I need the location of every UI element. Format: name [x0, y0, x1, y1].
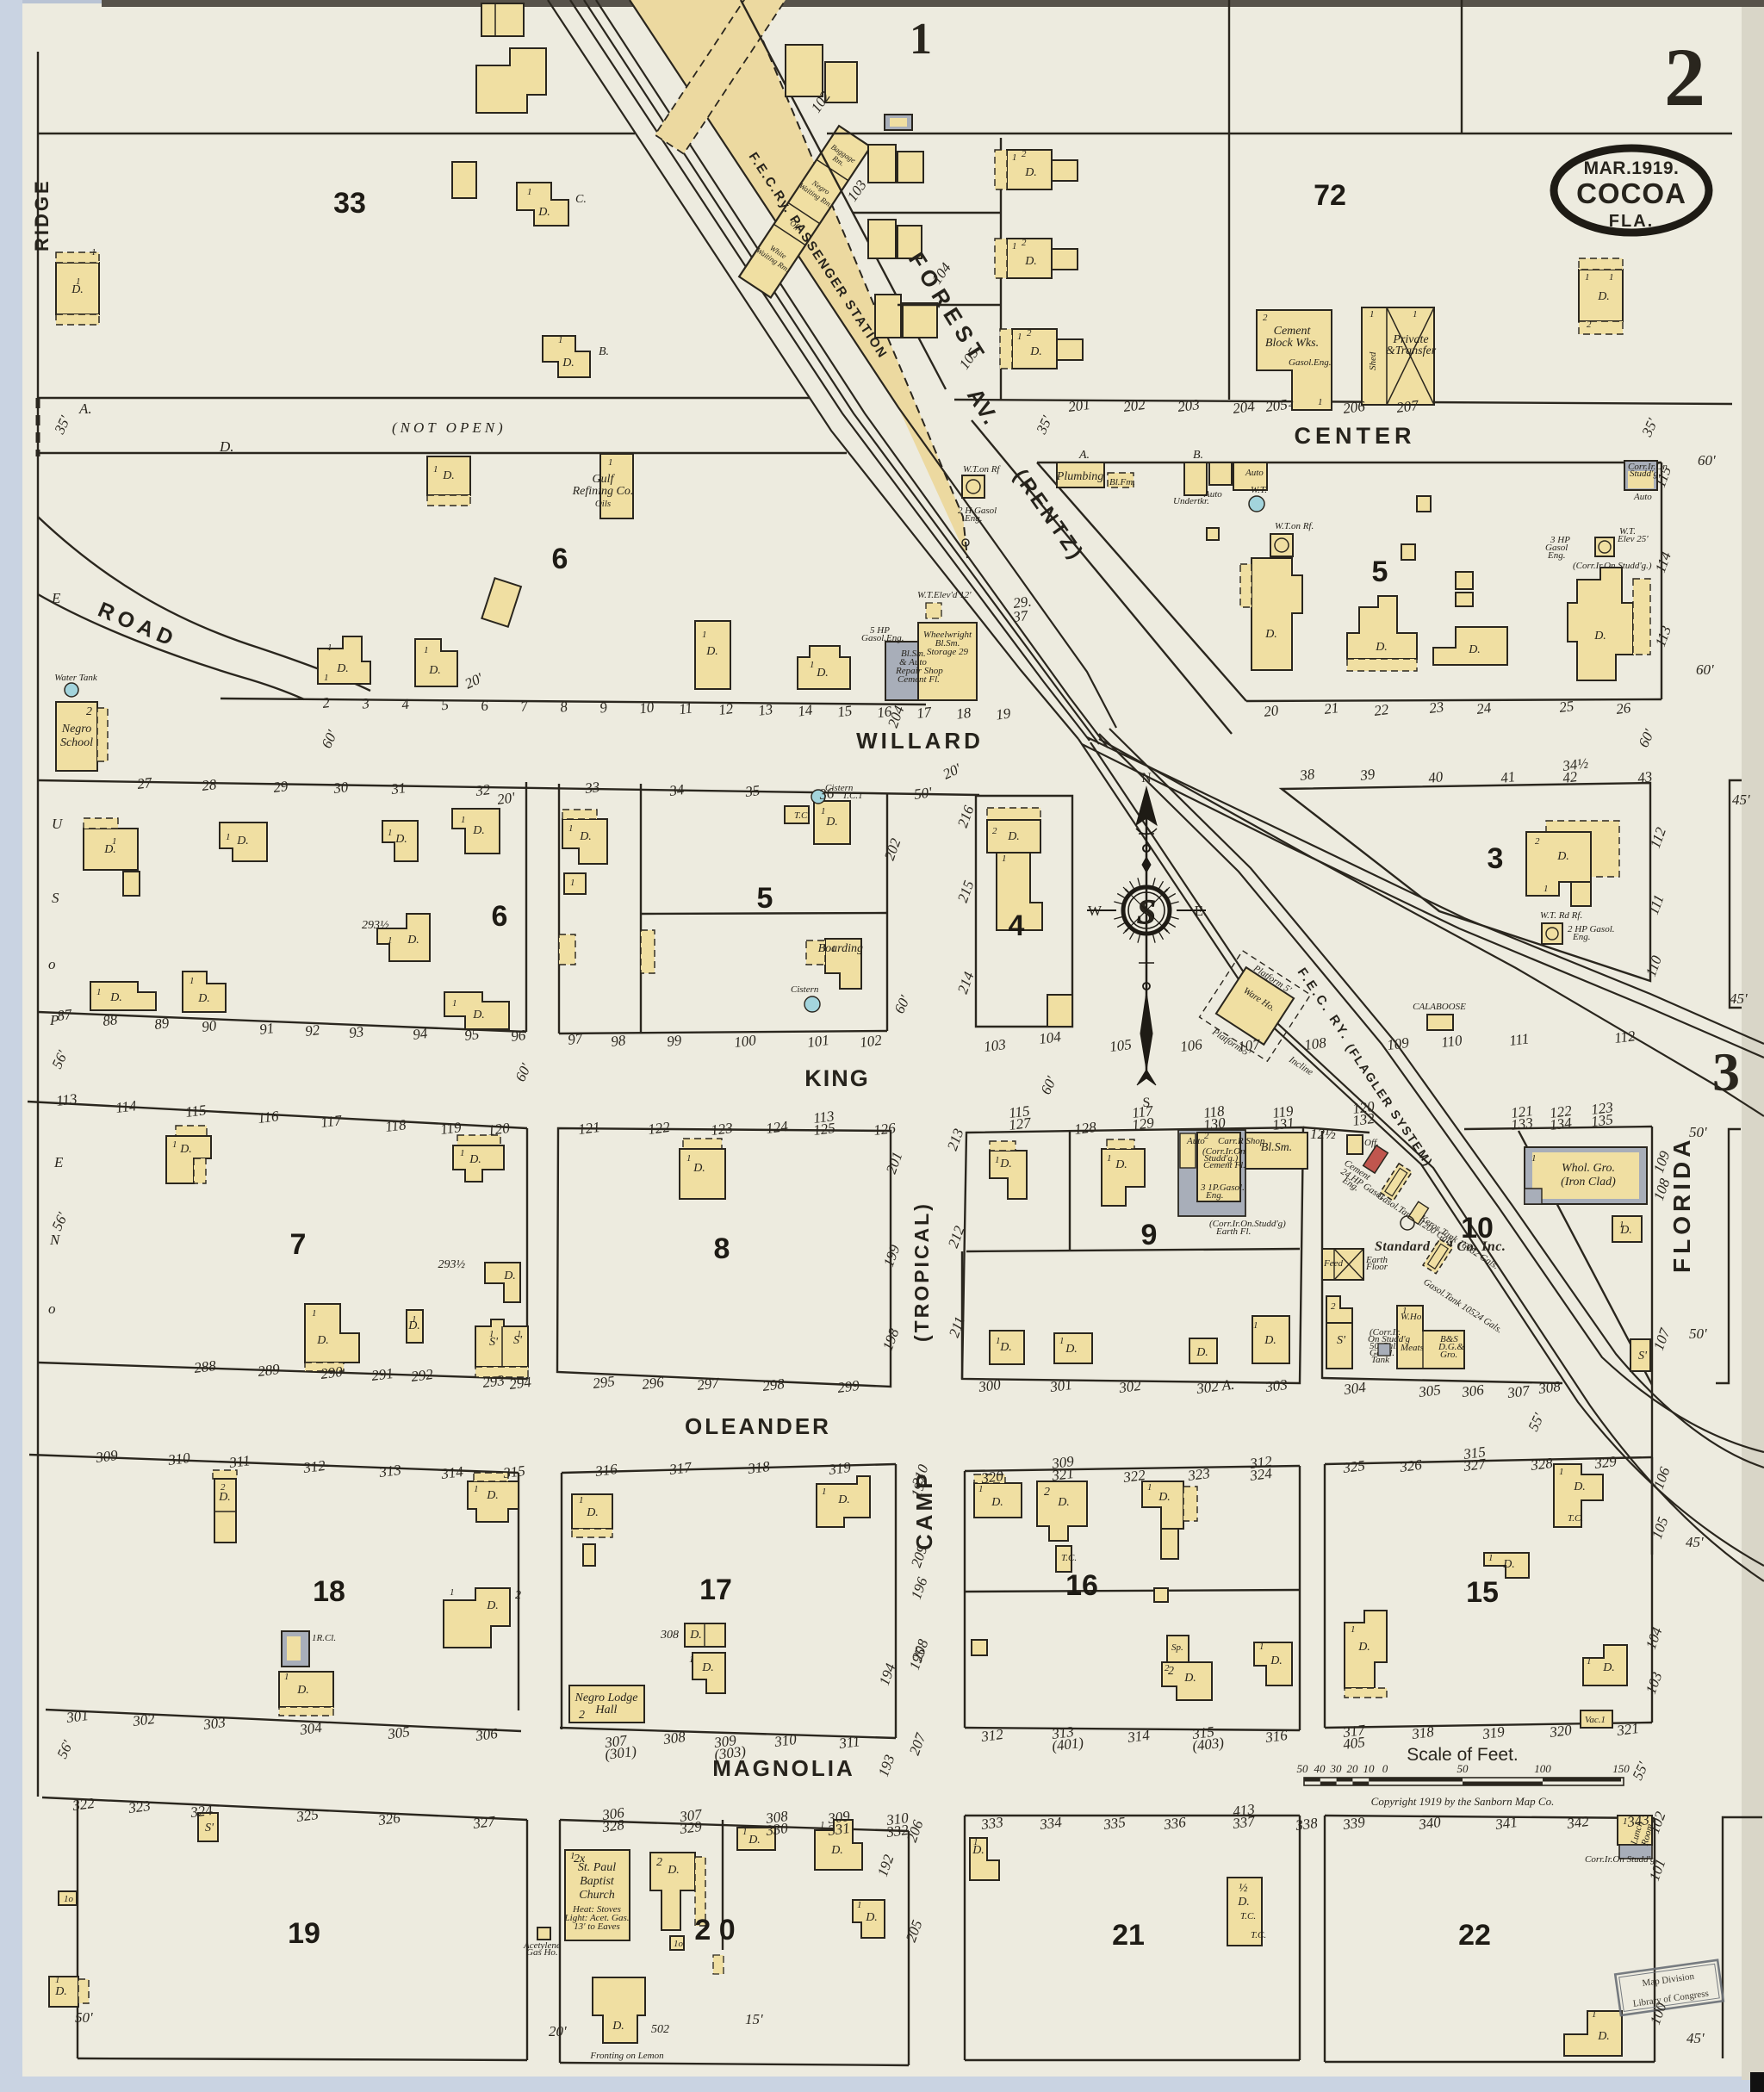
svg-text:304: 304 [1342, 1379, 1367, 1398]
svg-text:297: 297 [696, 1375, 721, 1394]
svg-text:295: 295 [592, 1373, 616, 1392]
svg-text:o: o [48, 956, 56, 972]
svg-text:119: 119 [439, 1119, 463, 1138]
svg-text:1: 1 [1559, 1467, 1564, 1477]
svg-text:50': 50' [1689, 1124, 1707, 1140]
svg-text:1: 1 [1017, 332, 1022, 342]
svg-text:2: 2 [1289, 399, 1294, 409]
svg-text:336: 336 [1162, 1814, 1187, 1833]
svg-text:2: 2 [1331, 1301, 1336, 1312]
svg-text:303: 303 [202, 1714, 227, 1733]
svg-text:1: 1 [1012, 152, 1017, 163]
svg-text:1: 1 [822, 1487, 827, 1497]
svg-text:6: 6 [552, 543, 568, 575]
svg-text:99: 99 [666, 1032, 683, 1050]
svg-text:135: 135 [1590, 1111, 1614, 1130]
svg-text:2: 2 [515, 1589, 521, 1602]
svg-text:D.: D. [469, 1153, 481, 1166]
svg-text:33: 33 [333, 187, 366, 220]
svg-text:1: 1 [388, 935, 393, 946]
svg-text:D.: D. [705, 645, 718, 658]
svg-text:1: 1 [312, 1308, 317, 1319]
svg-text:Sp.: Sp. [1171, 1642, 1183, 1653]
svg-text:298: 298 [761, 1375, 786, 1394]
svg-text:D.: D. [701, 1661, 714, 1674]
svg-text:1o: 1o [674, 1939, 684, 1949]
svg-text:9: 9 [1141, 1219, 1158, 1251]
svg-text:D.: D. [486, 1599, 499, 1612]
svg-text:104: 104 [1038, 1028, 1062, 1047]
svg-text:20: 20 [1263, 702, 1280, 720]
svg-text:50': 50' [913, 784, 933, 803]
svg-text:1: 1 [608, 457, 613, 468]
svg-text:Whol. Gro.: Whol. Gro. [1562, 1162, 1615, 1175]
svg-text:315: 315 [1462, 1443, 1487, 1462]
svg-text:D.: D. [472, 1009, 485, 1021]
svg-text:D.: D. [316, 1334, 329, 1347]
svg-text:1: 1 [831, 944, 836, 954]
svg-text:Auto: Auto [1186, 1136, 1205, 1146]
svg-text:1: 1 [450, 1587, 455, 1598]
svg-text:D.: D. [667, 1864, 680, 1877]
svg-text:1: 1 [821, 806, 826, 816]
svg-text:U: U [52, 816, 64, 832]
svg-text:2: 2 [1587, 320, 1592, 330]
svg-text:10: 10 [638, 698, 655, 717]
svg-text:318: 318 [1410, 1723, 1435, 1742]
svg-text:133: 133 [1510, 1114, 1534, 1133]
svg-text:35: 35 [743, 782, 761, 800]
svg-text:50': 50' [75, 2009, 93, 2026]
svg-text:E: E [53, 1154, 64, 1170]
svg-text:D.: D. [1057, 1496, 1070, 1509]
svg-text:(NOT OPEN): (NOT OPEN) [392, 419, 506, 436]
svg-text:(Corr.Ir.On Studd'g.): (Corr.Ir.On Studd'g.) [1573, 561, 1652, 571]
svg-text:103: 103 [983, 1036, 1007, 1055]
svg-text:1: 1 [1370, 309, 1375, 320]
svg-text:1R.Cl.: 1R.Cl. [312, 1633, 336, 1643]
svg-text:D.: D. [689, 1629, 702, 1642]
svg-text:1: 1 [742, 1827, 748, 1837]
svg-text:111: 111 [1508, 1030, 1530, 1049]
svg-text:112: 112 [1613, 1027, 1637, 1046]
svg-text:117: 117 [1131, 1102, 1155, 1121]
svg-text:322: 322 [71, 1795, 96, 1814]
svg-text:314: 314 [1126, 1727, 1151, 1746]
svg-text:319: 319 [827, 1459, 852, 1478]
svg-text:45': 45' [1730, 990, 1748, 1007]
svg-text:1: 1 [1585, 272, 1590, 282]
svg-text:20: 20 [1347, 1762, 1359, 1775]
svg-text:21: 21 [1323, 699, 1339, 717]
svg-text:301: 301 [65, 1707, 90, 1726]
svg-text:318: 318 [746, 1458, 771, 1477]
svg-text:D.: D. [1196, 1346, 1208, 1359]
svg-text:321: 321 [1615, 1720, 1640, 1739]
svg-text:1: 1 [1318, 397, 1323, 407]
svg-text:o: o [48, 1301, 56, 1317]
svg-text:308: 308 [1537, 1378, 1562, 1397]
svg-text:302: 302 [1117, 1377, 1142, 1396]
svg-text:Auto: Auto [1633, 492, 1652, 502]
svg-text:50: 50 [1457, 1762, 1469, 1775]
svg-text:203: 203 [1177, 396, 1201, 415]
svg-text:1: 1 [112, 836, 117, 847]
svg-text:41: 41 [1500, 768, 1516, 786]
svg-text:1: 1 [995, 1155, 1000, 1165]
svg-text:40: 40 [1314, 1762, 1326, 1775]
svg-text:102: 102 [859, 1032, 883, 1051]
svg-text:Hall: Hall [595, 1704, 618, 1716]
svg-text:3: 3 [1488, 842, 1504, 875]
svg-text:120: 120 [487, 1120, 511, 1139]
svg-text:D.: D. [830, 1844, 843, 1857]
svg-text:50': 50' [1689, 1325, 1707, 1342]
svg-text:323: 323 [1186, 1465, 1211, 1484]
svg-text:1: 1 [1002, 854, 1007, 864]
svg-text:5: 5 [1372, 556, 1388, 588]
svg-text:1: 1 [702, 630, 707, 640]
svg-text:Tank: Tank [1371, 1355, 1390, 1365]
svg-text:121: 121 [577, 1119, 601, 1138]
svg-text:1: 1 [1488, 1553, 1494, 1563]
svg-text:45': 45' [1686, 1534, 1704, 1550]
svg-text:D.: D. [748, 1834, 761, 1847]
svg-text:305: 305 [386, 1723, 411, 1742]
svg-text:D.: D. [428, 664, 441, 677]
svg-text:2: 2 [1027, 328, 1032, 338]
svg-text:21: 21 [1112, 1919, 1145, 1952]
svg-text:D.: D. [219, 438, 234, 455]
svg-text:B.: B. [1193, 449, 1203, 462]
svg-text:108: 108 [1303, 1034, 1327, 1053]
svg-text:91: 91 [258, 1020, 275, 1038]
svg-text:19: 19 [288, 1917, 320, 1950]
svg-text:Gas Ho.: Gas Ho. [526, 1947, 558, 1958]
svg-text:300: 300 [977, 1376, 1002, 1395]
svg-text:90: 90 [201, 1017, 218, 1035]
svg-text:92: 92 [304, 1021, 321, 1040]
svg-text:293: 293 [481, 1372, 506, 1391]
svg-text:W.T. Rd Rf.: W.T. Rd Rf. [1540, 910, 1582, 921]
svg-text:2: 2 [1165, 1663, 1170, 1673]
svg-text:1: 1 [579, 1495, 584, 1505]
svg-text:294: 294 [508, 1374, 532, 1393]
svg-text:Earth Fl.: Earth Fl. [1215, 1226, 1251, 1237]
svg-text:T.C.: T.C. [794, 810, 810, 821]
svg-text:100: 100 [1534, 1762, 1551, 1775]
svg-text:93: 93 [348, 1023, 364, 1041]
svg-text:Eng.: Eng. [1572, 932, 1590, 942]
svg-text:118: 118 [1202, 1102, 1226, 1121]
svg-text:15': 15' [745, 2011, 763, 2027]
svg-text:1: 1 [412, 1314, 417, 1325]
svg-text:1: 1 [527, 187, 532, 197]
svg-text:D.: D. [179, 1143, 192, 1156]
svg-text:D.: D. [1065, 1343, 1078, 1356]
svg-text:341: 341 [1494, 1814, 1519, 1833]
svg-text:34½: 34½ [1561, 754, 1589, 774]
svg-text:1: 1 [558, 335, 563, 345]
svg-text:325: 325 [295, 1806, 320, 1825]
svg-text:1: 1 [474, 1484, 479, 1494]
svg-text:2: 2 [1535, 836, 1540, 847]
svg-text:&Transfer: &Transfer [1386, 345, 1437, 357]
svg-text:34: 34 [668, 781, 686, 799]
svg-text:S': S' [205, 1822, 214, 1834]
svg-text:10: 10 [1461, 1212, 1494, 1245]
svg-text:105: 105 [1109, 1036, 1133, 1055]
svg-text:D.: D. [442, 469, 455, 482]
svg-text:22: 22 [1458, 1919, 1491, 1952]
svg-text:Eng.: Eng. [1205, 1190, 1223, 1201]
svg-text:39: 39 [1358, 766, 1376, 784]
svg-text:1: 1 [1587, 1656, 1592, 1667]
svg-text:KING: KING [804, 1065, 870, 1091]
svg-text:D.: D. [562, 357, 575, 369]
svg-text:1: 1 [452, 998, 457, 1009]
svg-text:Bl.Fm.: Bl.Fm. [1109, 477, 1135, 487]
svg-text:Water Tank: Water Tank [54, 673, 98, 683]
svg-text:109: 109 [1386, 1034, 1410, 1053]
svg-text:306: 306 [474, 1725, 499, 1744]
svg-text:15: 15 [836, 702, 853, 720]
svg-text:1: 1 [55, 1975, 60, 1985]
svg-text:106: 106 [1179, 1036, 1203, 1055]
svg-text:D.: D. [1573, 1481, 1586, 1493]
svg-text:307: 307 [1506, 1382, 1531, 1401]
svg-text:1: 1 [910, 15, 932, 64]
svg-text:1: 1 [1402, 1306, 1407, 1316]
svg-text:2: 2 [1204, 1131, 1209, 1141]
svg-text:5: 5 [757, 882, 773, 915]
svg-text:Cistern: Cistern [791, 984, 819, 995]
svg-text:Auto: Auto [1203, 489, 1222, 500]
svg-text:20': 20' [549, 2023, 567, 2039]
svg-text:115: 115 [1008, 1102, 1030, 1121]
svg-text:502: 502 [651, 2023, 669, 2036]
svg-text:113: 113 [812, 1108, 835, 1127]
svg-text:D.: D. [999, 1341, 1012, 1354]
svg-text:Cement Fl.: Cement Fl. [898, 674, 940, 685]
svg-text:33: 33 [583, 779, 600, 797]
svg-text:100: 100 [733, 1032, 757, 1051]
svg-text:205: 205 [1264, 396, 1289, 415]
svg-text:2: 2 [1263, 313, 1268, 323]
svg-text:309: 309 [94, 1447, 119, 1466]
svg-text:A.: A. [78, 400, 92, 417]
svg-text:45': 45' [1732, 791, 1750, 808]
svg-text:113: 113 [55, 1090, 78, 1109]
svg-text:114: 114 [115, 1097, 138, 1116]
svg-text:Cement: Cement [1274, 325, 1312, 338]
svg-text:1: 1 [978, 1484, 984, 1494]
svg-text:D.: D. [537, 206, 550, 219]
svg-text:School: School [60, 736, 93, 749]
svg-text:T.C.: T.C. [1251, 1930, 1266, 1940]
svg-text:FLA.: FLA. [1609, 212, 1654, 231]
svg-text:309: 309 [826, 1808, 851, 1827]
svg-text:1: 1 [568, 823, 574, 834]
svg-text:1: 1 [327, 642, 332, 653]
svg-text:D.: D. [1597, 2030, 1610, 2043]
svg-text:2: 2 [1044, 1486, 1050, 1499]
svg-text:322: 322 [1121, 1467, 1146, 1486]
svg-text:D.: D. [336, 662, 349, 675]
svg-text:122: 122 [647, 1119, 671, 1138]
svg-text:RIDGE: RIDGE [31, 178, 53, 251]
svg-text:308: 308 [661, 1729, 686, 1747]
svg-text:333: 333 [979, 1814, 1004, 1833]
svg-text:315: 315 [501, 1462, 526, 1481]
svg-text:7: 7 [290, 1228, 307, 1261]
svg-text:1: 1 [1592, 2009, 1597, 2020]
svg-text:1: 1 [820, 1820, 825, 1830]
svg-text:289: 289 [257, 1361, 281, 1380]
svg-text:1: 1 [973, 1837, 978, 1847]
svg-text:302: 302 [131, 1710, 156, 1729]
svg-text:1: 1 [424, 645, 429, 655]
svg-text:D.: D. [586, 1506, 599, 1519]
svg-text:1: 1 [324, 673, 329, 683]
svg-text:D.: D. [1183, 1672, 1196, 1685]
svg-text:317: 317 [668, 1459, 693, 1478]
svg-text:1: 1 [1619, 1220, 1624, 1230]
svg-text:4: 4 [1009, 909, 1025, 942]
svg-text:Eng.: Eng. [964, 513, 982, 524]
svg-text:2: 2 [579, 1709, 585, 1722]
svg-text:323: 323 [127, 1797, 152, 1816]
svg-text:D.: D. [579, 830, 592, 843]
svg-text:1: 1 [1543, 884, 1549, 894]
svg-text:T.C.: T.C. [1061, 1553, 1077, 1563]
svg-text:107: 107 [1237, 1036, 1262, 1055]
svg-text:Plumbing: Plumbing [1056, 470, 1103, 483]
svg-text:Bl.Sm.: Bl.Sm. [1261, 1141, 1293, 1154]
svg-text:D.: D. [197, 992, 210, 1005]
svg-text:2: 2 [220, 1482, 226, 1493]
svg-text:324: 324 [189, 1802, 214, 1821]
svg-text:D.: D. [1502, 1558, 1515, 1571]
svg-text:293½: 293½ [362, 919, 389, 932]
svg-text:326: 326 [1398, 1456, 1423, 1475]
svg-text:25: 25 [1558, 698, 1575, 716]
svg-text:Fronting on Lemon: Fronting on Lemon [589, 2051, 664, 2061]
svg-text:1: 1 [226, 832, 231, 842]
svg-text:Elev 25': Elev 25' [1617, 534, 1649, 544]
svg-text:60': 60' [1696, 661, 1714, 678]
svg-text:340: 340 [1417, 1814, 1442, 1833]
svg-text:1: 1 [857, 1900, 862, 1910]
svg-text:24: 24 [1475, 699, 1493, 717]
svg-text:335: 335 [1102, 1814, 1127, 1833]
svg-text:110: 110 [1440, 1032, 1463, 1051]
svg-text:306: 306 [1460, 1381, 1485, 1400]
svg-text:40: 40 [1427, 768, 1444, 786]
svg-text:293½: 293½ [438, 1258, 466, 1271]
svg-text:D.: D. [1264, 1334, 1276, 1347]
svg-text:Feed: Feed [1323, 1258, 1343, 1269]
svg-text:32: 32 [474, 781, 492, 799]
svg-text:329: 329 [1593, 1453, 1618, 1472]
svg-text:(TROPICAL): (TROPICAL) [910, 1201, 933, 1342]
svg-text:T.C.: T.C. [1568, 1513, 1583, 1524]
svg-text:19: 19 [995, 705, 1012, 723]
svg-text:2: 2 [1022, 149, 1027, 159]
svg-text:D.: D. [1597, 290, 1610, 303]
svg-text:Boarding: Boarding [818, 942, 863, 955]
svg-text:339: 339 [1341, 1814, 1366, 1833]
svg-text:Church: Church [579, 1889, 614, 1902]
svg-text:72: 72 [1314, 179, 1346, 212]
svg-text:1: 1 [1107, 1153, 1112, 1164]
svg-text:1: 1 [76, 276, 81, 287]
svg-text:Storage 29: Storage 29 [927, 647, 968, 657]
svg-text:288: 288 [193, 1357, 217, 1376]
svg-text:3: 3 [1712, 1041, 1740, 1102]
svg-text:C.: C. [575, 193, 587, 206]
svg-text:50: 50 [1297, 1762, 1309, 1775]
svg-text:10: 10 [1363, 1762, 1376, 1775]
svg-text:115: 115 [184, 1102, 207, 1120]
svg-text:6: 6 [492, 900, 508, 933]
svg-text:304: 304 [298, 1719, 323, 1738]
svg-text:D.: D. [109, 991, 122, 1004]
svg-text:36: 36 [817, 785, 835, 803]
svg-text:291: 291 [370, 1365, 394, 1384]
svg-text:T.C.1: T.C.1 [842, 791, 863, 801]
svg-text:1: 1 [1147, 1482, 1152, 1493]
svg-text:1: 1 [689, 1654, 694, 1665]
svg-text:89: 89 [153, 1015, 171, 1033]
svg-text:D.: D. [1115, 1158, 1127, 1171]
svg-text:COCOA: COCOA [1576, 177, 1686, 209]
svg-text:22: 22 [1373, 701, 1390, 719]
svg-text:D.: D. [837, 1493, 850, 1506]
svg-text:8: 8 [714, 1232, 730, 1265]
svg-text:31: 31 [389, 779, 407, 798]
svg-text:311: 311 [227, 1452, 251, 1471]
svg-text:124: 124 [765, 1118, 789, 1137]
svg-text:D.: D. [1270, 1654, 1283, 1667]
svg-text:312: 312 [1248, 1453, 1273, 1472]
svg-text:120: 120 [1351, 1098, 1376, 1117]
svg-text:W.T.on Rf.: W.T.on Rf. [1275, 521, 1314, 531]
svg-text:Negro: Negro [61, 723, 91, 736]
svg-text:1: 1 [461, 815, 466, 825]
svg-text:307: 307 [678, 1806, 704, 1825]
svg-text:1: 1 [1609, 272, 1614, 282]
svg-text:60': 60' [1698, 452, 1716, 469]
svg-text:D.: D. [1593, 630, 1606, 642]
svg-text:D.: D. [1357, 1641, 1370, 1654]
svg-text:320: 320 [1548, 1722, 1573, 1741]
svg-text:327: 327 [471, 1813, 497, 1832]
svg-text:D.: D. [693, 1162, 705, 1175]
svg-text:D.: D. [1029, 345, 1042, 358]
svg-text:18: 18 [313, 1575, 345, 1608]
svg-text:P: P [49, 1012, 59, 1028]
svg-text:D.: D. [991, 1496, 1003, 1509]
svg-text:Copyright 1919 by the Sanborn: Copyright 1919 by the Sanborn Map Co. [1371, 1795, 1555, 1808]
svg-text:D.: D. [999, 1158, 1012, 1170]
svg-text:296: 296 [641, 1374, 665, 1393]
svg-text:334: 334 [1038, 1814, 1063, 1833]
svg-text:D.: D. [1024, 255, 1037, 268]
svg-text:OLEANDER: OLEANDER [685, 1413, 831, 1439]
svg-text:16: 16 [1065, 1569, 1098, 1602]
svg-text:116: 116 [257, 1108, 280, 1127]
